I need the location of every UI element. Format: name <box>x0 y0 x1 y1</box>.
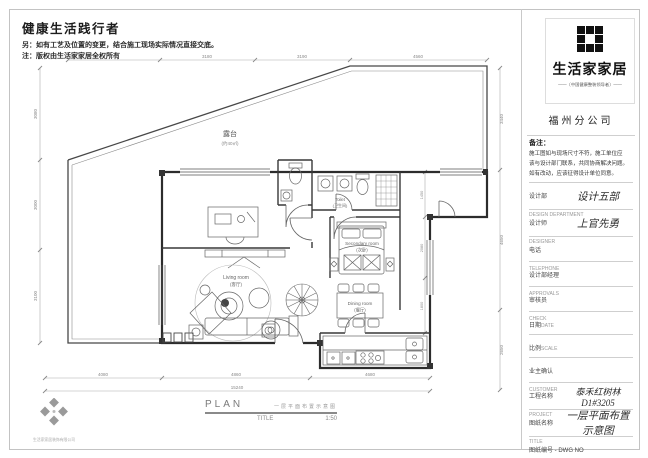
remarks-line-1: 施工图如与现场尺寸不符，施工单位应 <box>529 150 633 158</box>
field-approvals: 设计部经理APPROVALS <box>529 262 633 287</box>
brand-tagline: ——〔中国健康整装领导者〕—— <box>553 82 628 88</box>
interior-walls <box>162 160 430 343</box>
field-project: 工程名称PROJECT 泰禾红树林D1#3205 <box>529 383 633 410</box>
kitchen-fixtures <box>323 336 427 365</box>
svg-text:3100: 3100 <box>33 290 38 301</box>
plan-footer: PLAN 一层平面布置示意图 TITLE 1:50 <box>205 399 337 422</box>
svg-text:3080: 3080 <box>33 108 38 119</box>
branch-name: 福州分公司 <box>527 112 635 136</box>
svg-text:3190: 3190 <box>297 54 308 59</box>
plan-title-label: TITLE <box>257 416 273 422</box>
field-scale: 比例SCALE <box>529 335 633 358</box>
remarks-line-3: 如有改动，应该征得设计单位同意。 <box>529 170 633 178</box>
svg-text:4860: 4860 <box>231 372 242 377</box>
svg-text:4680: 4680 <box>365 372 376 377</box>
bedroom-label-cn: (次卧) <box>356 247 368 254</box>
exterior-walls <box>162 172 487 368</box>
drawing-sheet: 健康生活践行者 另：如有工艺及位置的变更，结合施工现场实际情况直接交底。 注：版… <box>0 0 648 458</box>
living-room-label-cn: (客厅) <box>230 281 242 288</box>
brand-name: 生活家家居 <box>546 59 634 79</box>
company-compass-logo: 生活家家居装饰有限公司 <box>26 398 82 443</box>
living-furniture <box>189 285 298 339</box>
parapet-teeth <box>163 333 193 342</box>
svg-text:4560: 4560 <box>413 54 424 59</box>
svg-text:4080: 4080 <box>98 372 109 377</box>
remarks-line-2: 该与设计部门联系，共同协商解决问题。 <box>529 160 633 168</box>
terrace-area-label: (约40㎡) <box>221 140 239 147</box>
terrace-label: 露台 <box>223 129 237 138</box>
living-room-label: Living room <box>223 275 249 281</box>
wc-fixtures <box>281 163 302 201</box>
field-customer: 业主确认CUSTOMER <box>529 358 633 383</box>
svg-text:3180: 3180 <box>202 54 213 59</box>
dimension-text: 3090 3180 3190 4560 3080 3000 3100 3440 … <box>33 54 504 390</box>
svg-text:3090: 3090 <box>109 54 120 59</box>
plan-title-cn: 一层平面布置示意图 <box>274 403 337 410</box>
bathroom-fixtures <box>318 174 397 206</box>
svg-text:3000: 3000 <box>33 199 38 210</box>
svg-text:1800: 1800 <box>420 302 424 310</box>
svg-text:3440: 3440 <box>499 113 504 124</box>
field-designer: 设计师DESIGNER 上官先勇 <box>529 210 633 237</box>
svg-text:2080: 2080 <box>420 244 424 252</box>
plan-label: PLAN <box>205 399 243 410</box>
bedroom-label: Secondary room <box>345 241 379 246</box>
field-value: 设计五部 <box>563 189 633 204</box>
field-check: 审核员CHECK <box>529 287 633 312</box>
toilet-label-cn: (卫生间) <box>333 202 348 208</box>
compass-icon <box>32 398 76 430</box>
field-value: 泰禾红树林D1#3205 <box>563 385 633 408</box>
toilet-label: Toilet <box>335 197 346 202</box>
titleblock-fields: 设计部DESIGN DEPARTMENT 设计五部 设计师DESIGNER 上官… <box>529 182 633 457</box>
brand-logo-box: 生活家家居 ——〔中国健康整装领导者〕—— <box>545 18 635 104</box>
dining-room-label: Dining room <box>348 301 373 306</box>
columns <box>159 169 488 369</box>
svg-text:15240: 15240 <box>231 385 244 390</box>
svg-text:2650: 2650 <box>499 344 504 355</box>
field-date: 日期DATE <box>529 312 633 335</box>
field-value: 一层平面布置示意图 <box>563 408 633 438</box>
brand-logo-icon <box>577 26 603 52</box>
compass-caption: 生活家家居装饰有限公司 <box>30 437 78 442</box>
room-labels: 露台 (约40㎡) Living room (客厅) Secondary roo… <box>221 129 379 314</box>
plan-scale: 1:50 <box>325 416 337 422</box>
field-telephone: 电话TELEPHONE <box>529 237 633 262</box>
field-drawing-title: 图纸名称TITLE 一层平面布置示意图 <box>529 410 633 437</box>
study-furniture <box>205 207 285 268</box>
windows <box>159 169 482 325</box>
field-value: 上官先勇 <box>563 216 633 231</box>
field-dwg-no: 图纸编号 - DWG NO <box>529 437 633 457</box>
remarks-block: 备注： 施工图如与现场尺寸不符，施工单位应 该与设计部门联系，共同协商解决问题。… <box>529 138 633 178</box>
remarks-label: 备注： <box>529 138 633 148</box>
svg-text:4650: 4650 <box>499 234 504 245</box>
spiral-stair <box>286 284 318 316</box>
field-design-department: 设计部DESIGN DEPARTMENT 设计五部 <box>529 183 633 210</box>
dining-room-label-cn: (餐厅) <box>354 307 366 314</box>
svg-text:1450: 1450 <box>420 191 424 199</box>
